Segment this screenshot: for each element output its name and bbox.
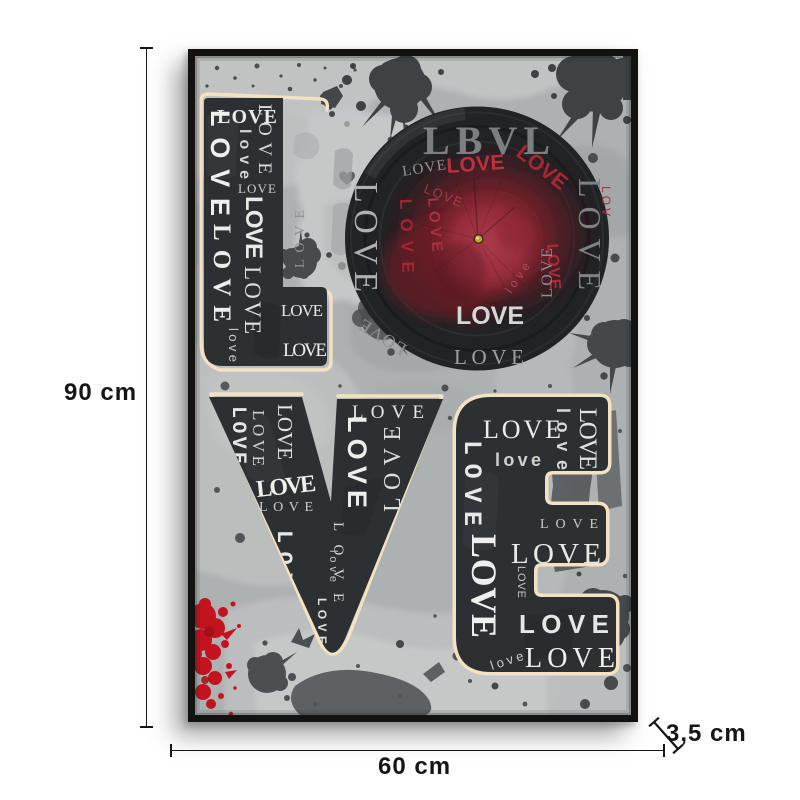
- svg-text:LOVE: LOVE: [464, 534, 504, 638]
- svg-text:LOV: LOV: [599, 186, 613, 216]
- svg-text:LOVE: LOVE: [238, 181, 276, 196]
- svg-text:LOVE: LOVE: [456, 302, 524, 330]
- svg-text:LOVE: LOVE: [281, 301, 323, 320]
- svg-text:LOVE: LOVE: [273, 404, 297, 460]
- svg-text:LOVE: LOVE: [240, 196, 267, 260]
- svg-text:LOVE: LOVE: [574, 408, 601, 470]
- svg-text:LOVE: LOVE: [283, 340, 327, 361]
- svg-text:LOVE: LOVE: [515, 566, 527, 598]
- svg-text:LOVE: LOVE: [446, 151, 505, 178]
